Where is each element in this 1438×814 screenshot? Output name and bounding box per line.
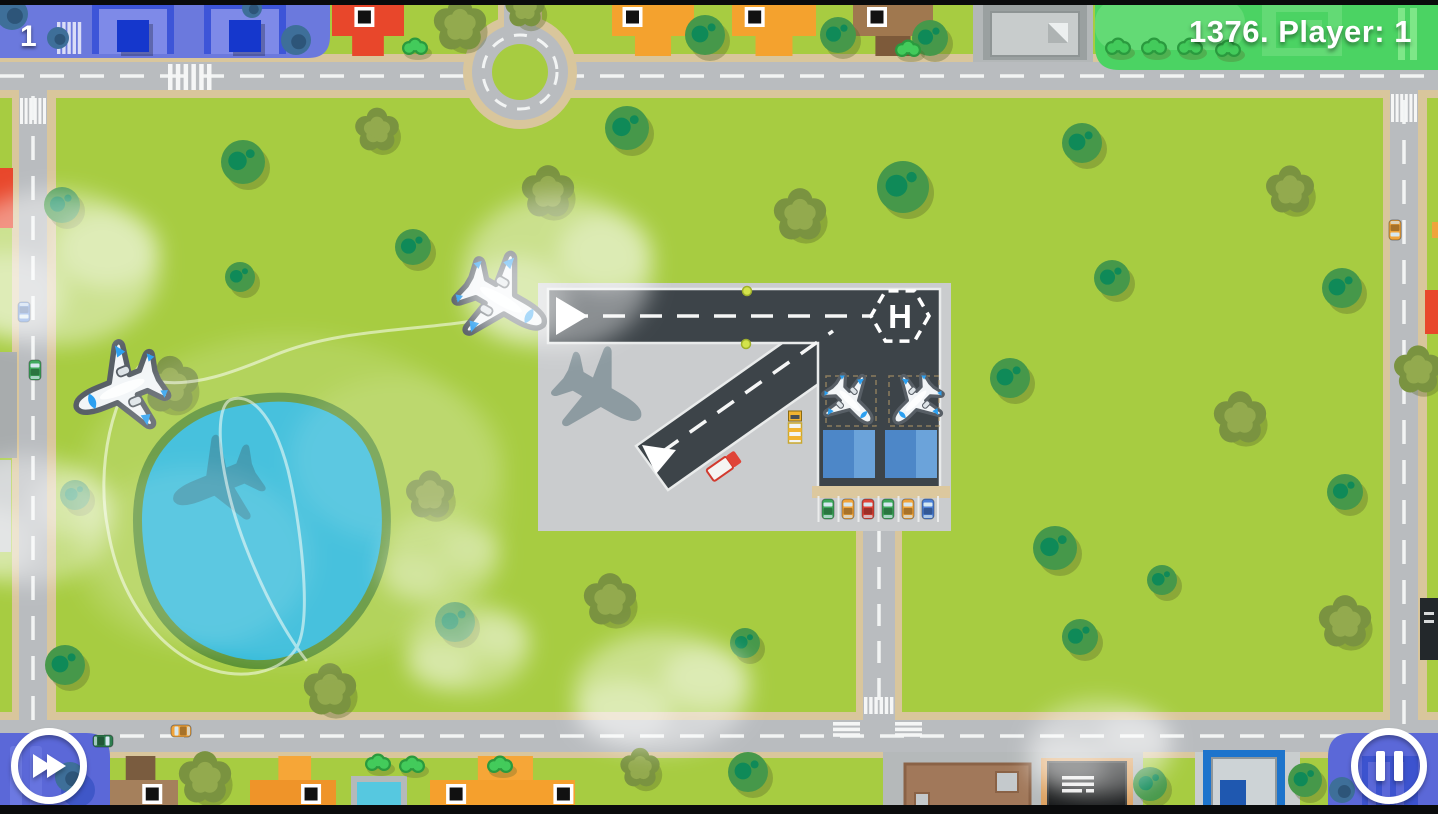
level-indicator: 1 xyxy=(20,20,37,54)
game-screen: H 1 1376. Player: 1 xyxy=(0,0,1438,814)
parked-car xyxy=(882,499,894,519)
hangar xyxy=(885,430,937,478)
helipad-letter: H xyxy=(888,298,912,335)
pause-icon xyxy=(1376,751,1403,781)
car xyxy=(171,725,191,737)
parked-car xyxy=(842,499,854,519)
follow-me-truck xyxy=(789,411,802,443)
letterbox-top xyxy=(0,0,1438,5)
cloud xyxy=(406,603,530,693)
warehouse-building xyxy=(973,0,1093,62)
sidewalk xyxy=(812,486,950,498)
parked-car xyxy=(822,499,834,519)
cloud xyxy=(380,515,500,605)
dark-tree xyxy=(281,25,311,55)
car xyxy=(1389,220,1401,240)
cloud xyxy=(463,194,653,350)
parked-car xyxy=(902,499,914,519)
parked-car xyxy=(862,499,874,519)
letterbox-bottom xyxy=(0,805,1438,814)
waypoint-dot xyxy=(743,287,752,296)
left-road xyxy=(19,62,47,754)
cloud xyxy=(1028,700,1172,796)
dark-tree xyxy=(1329,777,1355,803)
blue-building xyxy=(1203,750,1285,814)
fast-forward-button[interactable] xyxy=(11,728,87,804)
score-text: 1376. Player: 1 xyxy=(1189,14,1412,50)
right-road xyxy=(1390,62,1418,756)
hangar xyxy=(823,430,875,478)
pause-button[interactable] xyxy=(1351,728,1427,804)
game-map[interactable]: H xyxy=(0,0,1438,814)
car xyxy=(29,360,41,380)
parked-car xyxy=(922,499,934,519)
cloud xyxy=(574,632,750,752)
waypoint-dot xyxy=(742,340,751,349)
dark-tree xyxy=(47,27,69,49)
apartment-building xyxy=(92,2,174,56)
car xyxy=(93,735,113,747)
fast-forward-icon xyxy=(33,754,66,778)
